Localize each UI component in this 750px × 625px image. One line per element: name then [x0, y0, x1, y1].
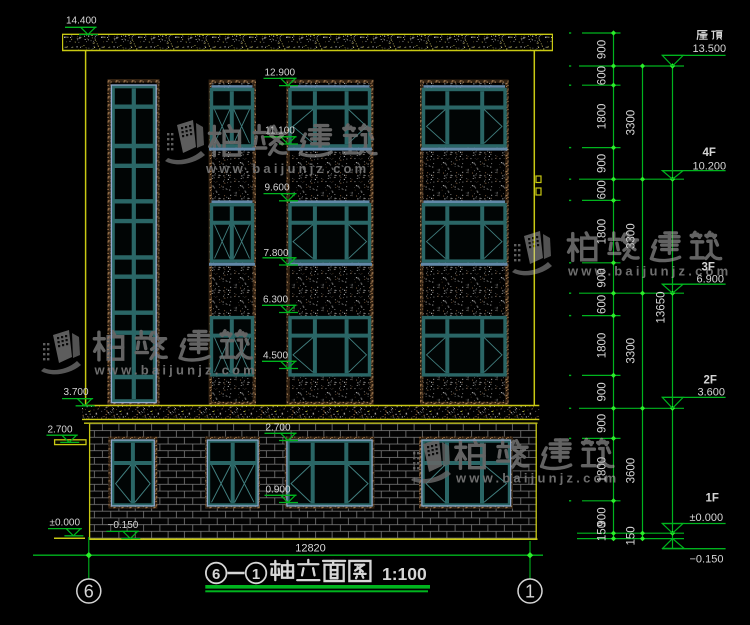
svg-text:www.baijunjz.com: www.baijunjz.com — [567, 264, 731, 279]
svg-text:600: 600 — [597, 66, 609, 85]
svg-text:600: 600 — [597, 180, 609, 199]
svg-text:1: 1 — [252, 566, 260, 583]
svg-text:−0.150: −0.150 — [108, 520, 139, 531]
svg-text:3.700: 3.700 — [64, 387, 89, 398]
svg-text:2.700: 2.700 — [48, 424, 73, 435]
svg-text:6.300: 6.300 — [263, 294, 288, 305]
svg-text:13650: 13650 — [656, 292, 668, 324]
svg-text:900: 900 — [597, 154, 609, 173]
svg-text:4.500: 4.500 — [263, 350, 288, 361]
svg-text:1800: 1800 — [597, 104, 609, 130]
svg-text:2F: 2F — [704, 375, 717, 387]
svg-text:1800: 1800 — [597, 333, 609, 359]
svg-text:2.700: 2.700 — [266, 422, 291, 433]
svg-text:www.baijunjz.com: www.baijunjz.com — [205, 161, 369, 176]
svg-text:3600: 3600 — [626, 458, 638, 484]
svg-text:−0.150: −0.150 — [690, 554, 724, 566]
svg-text:900: 900 — [597, 382, 609, 401]
svg-text:150: 150 — [597, 522, 609, 541]
svg-text:12820: 12820 — [295, 543, 326, 555]
svg-text:3300: 3300 — [626, 338, 638, 364]
svg-text:3300: 3300 — [626, 110, 638, 136]
svg-text:13.500: 13.500 — [693, 43, 727, 55]
svg-text:150: 150 — [626, 526, 638, 545]
svg-text:10.200: 10.200 — [693, 161, 727, 173]
svg-text:9.600: 9.600 — [265, 183, 290, 194]
svg-text:900: 900 — [597, 40, 609, 59]
svg-text:www.baijunjz.com: www.baijunjz.com — [455, 471, 619, 486]
svg-text:900: 900 — [597, 414, 609, 433]
svg-text:6: 6 — [84, 582, 94, 602]
svg-text:600: 600 — [597, 295, 609, 314]
svg-text:1F: 1F — [706, 493, 719, 505]
svg-text:4F: 4F — [703, 147, 716, 159]
svg-text:1:100: 1:100 — [382, 564, 427, 584]
svg-text:1: 1 — [525, 582, 535, 602]
svg-text:0.900: 0.900 — [266, 484, 291, 495]
svg-text:14.400: 14.400 — [66, 16, 97, 27]
svg-text:1800: 1800 — [597, 219, 609, 245]
svg-text:±0.000: ±0.000 — [50, 517, 81, 528]
svg-text:www.baijunjz.com: www.baijunjz.com — [94, 363, 258, 378]
svg-text:3.600: 3.600 — [698, 387, 726, 399]
svg-text:12.900: 12.900 — [265, 67, 296, 78]
svg-text:±0.000: ±0.000 — [690, 512, 724, 524]
svg-text:6: 6 — [212, 566, 220, 583]
